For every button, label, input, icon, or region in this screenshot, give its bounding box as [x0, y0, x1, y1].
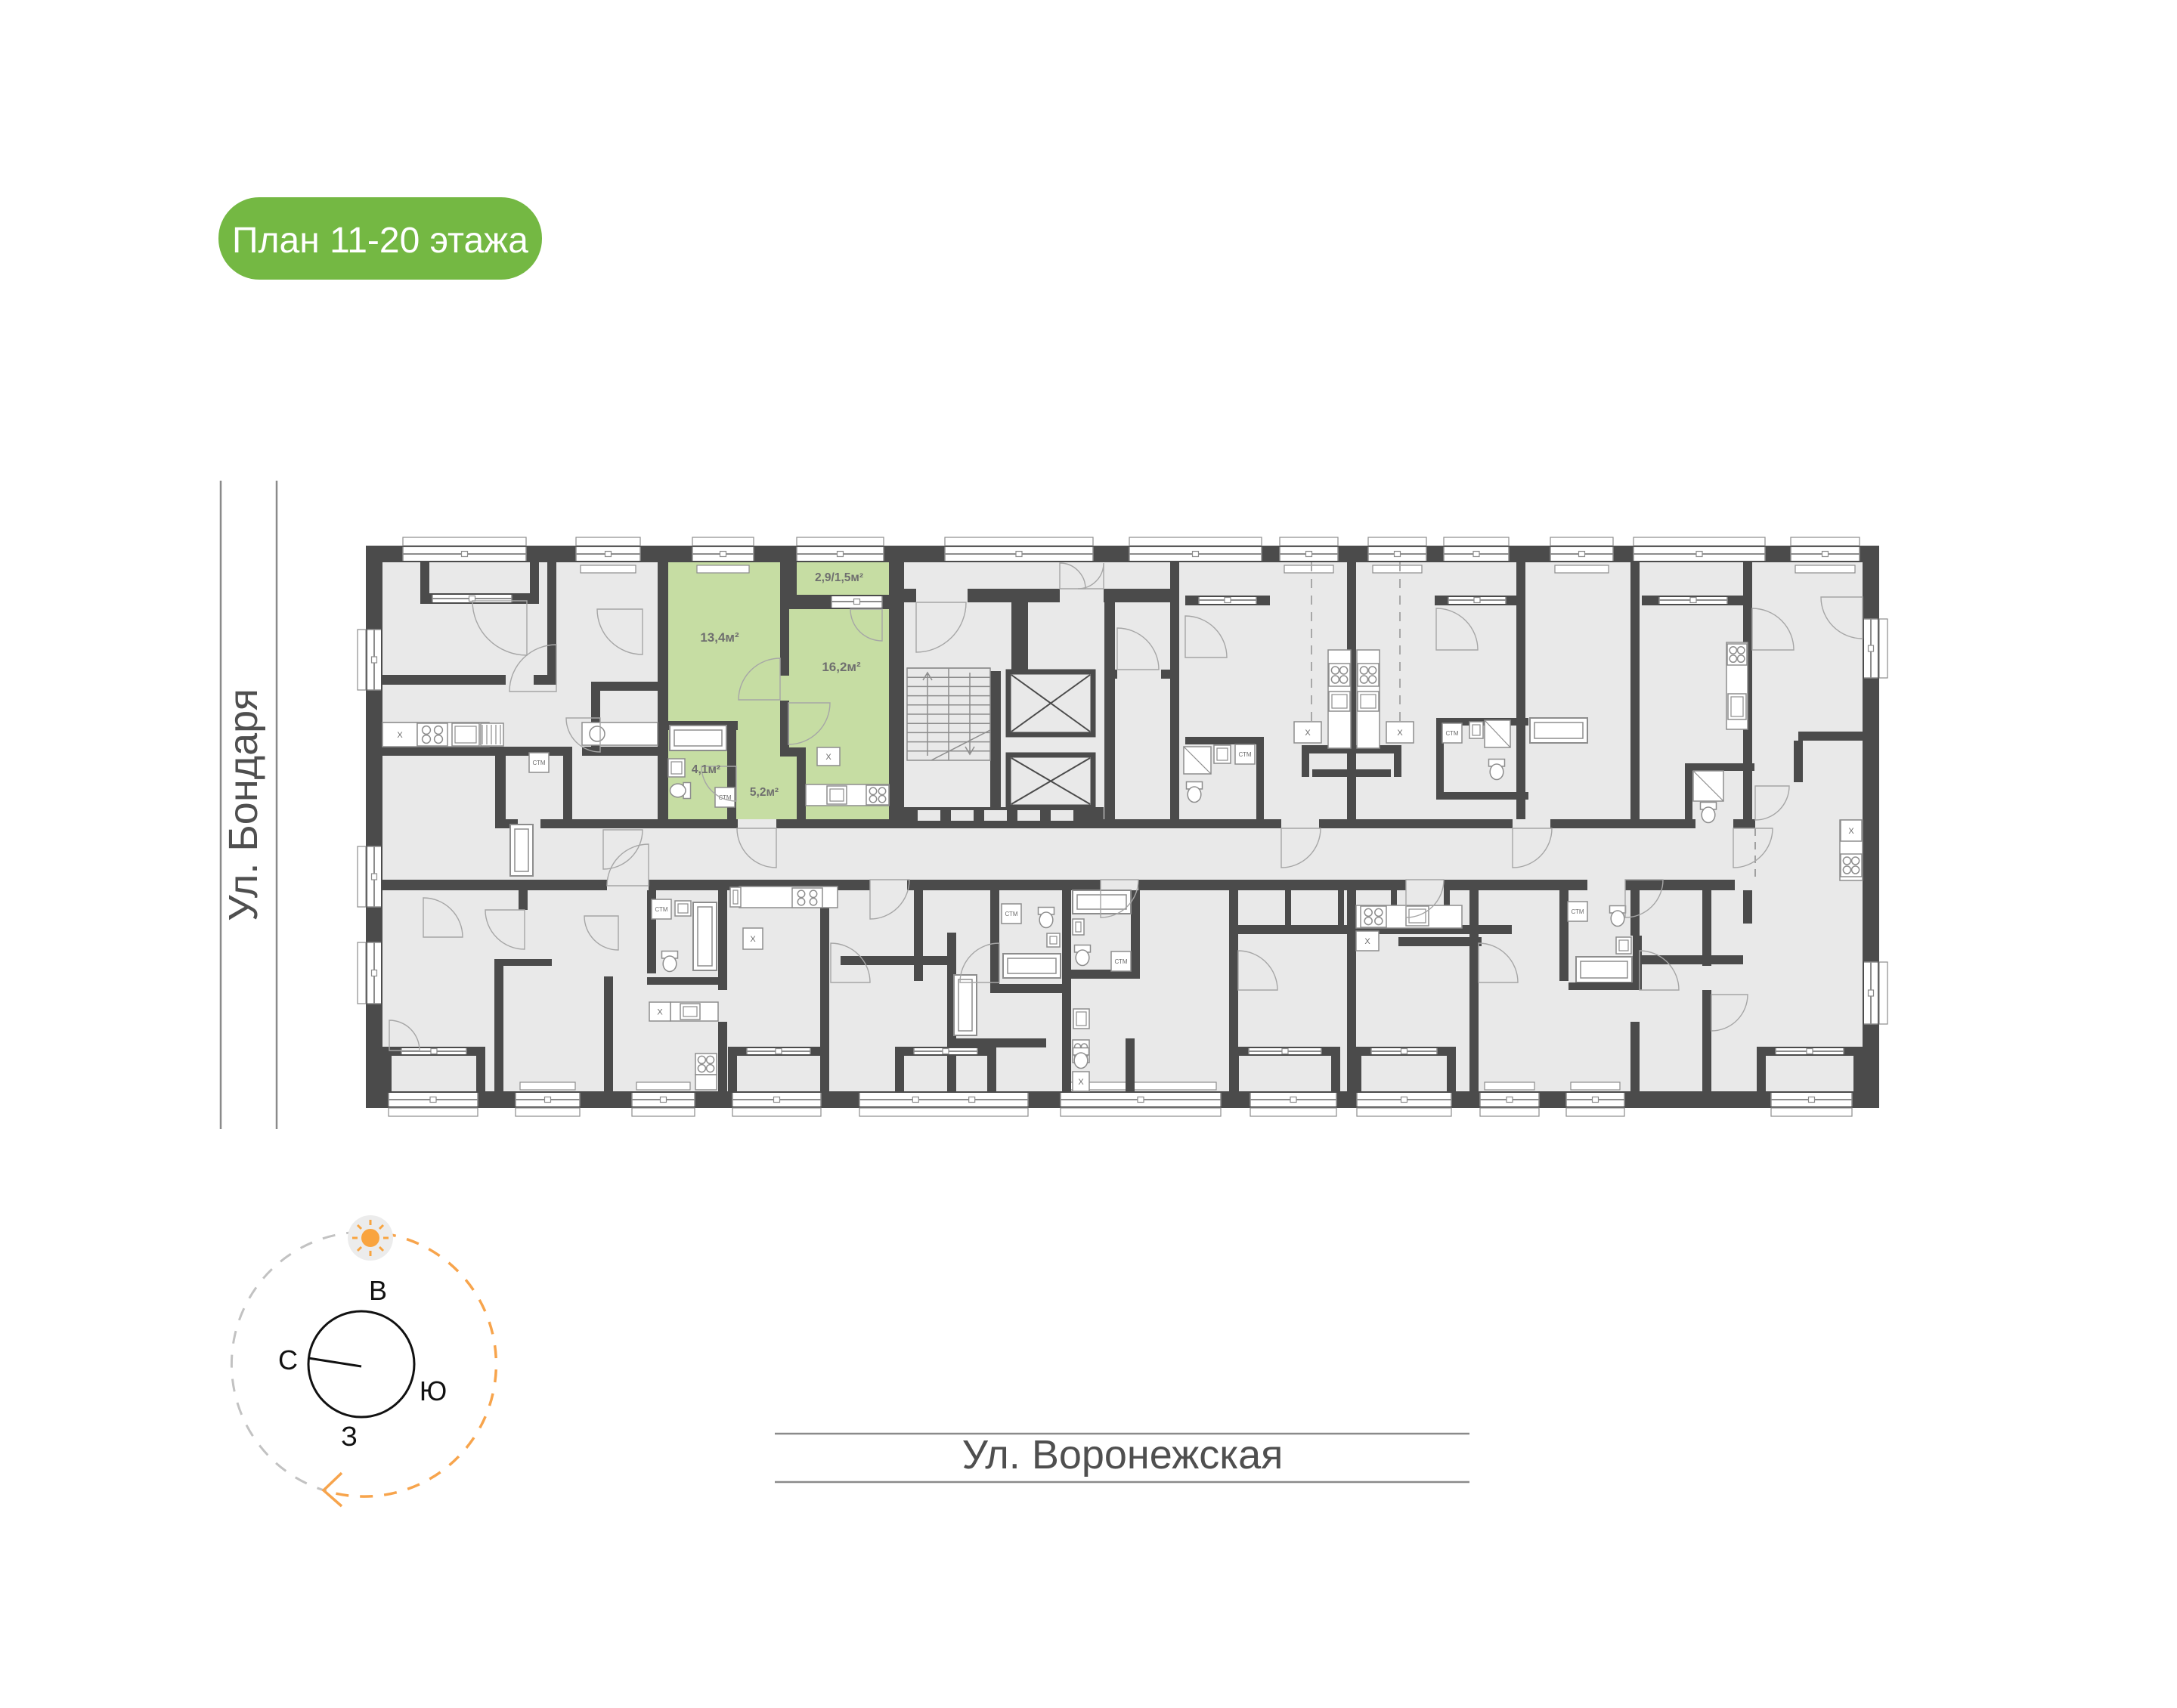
svg-text:X: X: [1078, 1078, 1084, 1087]
svg-text:СТМ: СТМ: [1114, 958, 1127, 965]
svg-text:СТМ: СТМ: [1445, 730, 1458, 737]
svg-text:Ул. Бондаря: Ул. Бондаря: [221, 688, 266, 921]
svg-text:СТМ: СТМ: [532, 760, 545, 766]
svg-text:Ю: Ю: [420, 1375, 447, 1406]
svg-text:СТМ: СТМ: [1005, 911, 1017, 917]
svg-text:X: X: [825, 753, 831, 762]
svg-text:X: X: [750, 935, 756, 944]
svg-text:З: З: [341, 1421, 358, 1452]
svg-text:4,1м²: 4,1м²: [692, 763, 720, 776]
svg-text:2,9/1,5м²: 2,9/1,5м²: [815, 571, 863, 584]
svg-text:СТМ: СТМ: [655, 906, 667, 913]
svg-text:X: X: [1848, 827, 1854, 836]
svg-text:16,2м²: 16,2м²: [822, 660, 861, 674]
svg-text:СТМ: СТМ: [1238, 751, 1251, 758]
svg-text:Ул. Воронежская: Ул. Воронежская: [962, 1432, 1284, 1477]
svg-text:5,2м²: 5,2м²: [750, 786, 779, 799]
svg-text:В: В: [369, 1275, 387, 1306]
svg-text:X: X: [657, 1008, 663, 1017]
svg-text:С: С: [278, 1344, 298, 1375]
svg-text:13,4м²: 13,4м²: [700, 630, 739, 645]
svg-text:X: X: [397, 731, 403, 740]
svg-text:X: X: [1397, 729, 1403, 738]
svg-text:X: X: [1305, 729, 1311, 738]
svg-text:X: X: [1364, 937, 1370, 946]
svg-text:СТМ: СТМ: [1571, 908, 1584, 915]
svg-text:План 11-20 этажа: План 11-20 этажа: [232, 221, 528, 261]
